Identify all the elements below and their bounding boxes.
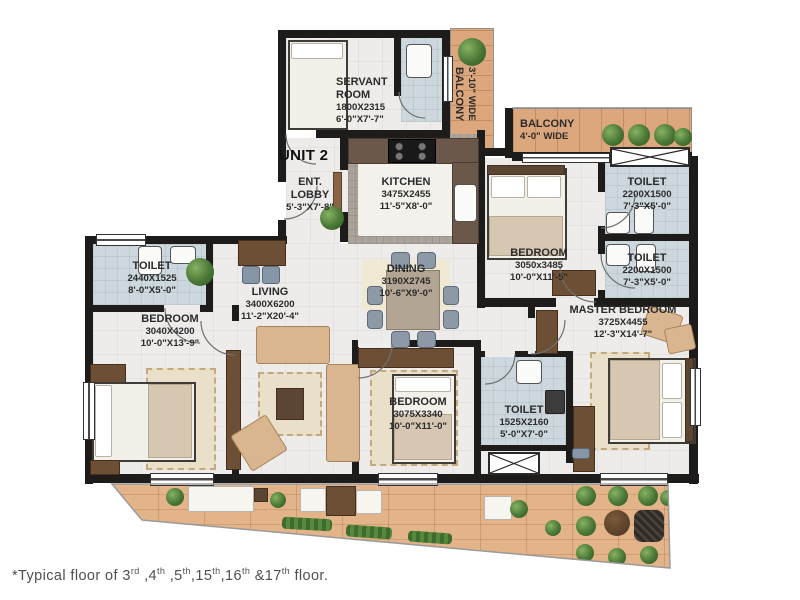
duct-shaft [488, 452, 540, 475]
toilet-wc [516, 360, 542, 384]
label-ent-lobby: ENT. LOBBY 5'-3"X7'-8" [284, 176, 336, 214]
label-toilet-left: TOILET 2440X1525 8'-0"X5'-0" [104, 260, 200, 297]
door-opening [528, 318, 535, 354]
label-dining: DINING 3190X2745 10'-6"X9'-0" [362, 263, 450, 300]
stove [388, 139, 436, 163]
terrace-plant [270, 492, 286, 508]
floor-mat [572, 448, 590, 459]
pillow [395, 377, 451, 392]
label-bedroom-right: BEDROOM 3050x3485 10'-0"X11'-5" [483, 247, 595, 284]
balcony-plant [602, 124, 624, 146]
terrace-plant [576, 516, 596, 536]
terrace-plant [510, 500, 528, 518]
tv-unit [226, 350, 241, 470]
terrace-plant [545, 520, 561, 536]
dining-chair [391, 331, 410, 348]
label-kitchen: KITCHEN 3475X2455 11'-5"X8'-0" [356, 176, 456, 213]
pillow [662, 363, 682, 399]
balcony-plant [654, 124, 676, 146]
wardrobe [573, 406, 595, 472]
coffee-table [276, 388, 304, 420]
terrace-sofa [188, 486, 254, 512]
balcony-sliding-door [522, 153, 610, 163]
pillow [662, 402, 682, 438]
kitchen-sink [454, 184, 477, 222]
label-toilet-right-top: TOILET 2200X1500 7'-3"X5'-0" [604, 176, 690, 213]
terrace-plant [640, 546, 658, 564]
pillow [491, 176, 525, 198]
toilet-wc [406, 44, 432, 78]
wall [598, 234, 692, 241]
wardrobe [90, 364, 126, 384]
label-master-bedroom: MASTER BEDROOM 3725X4455 12'-3"X14'-7" [548, 304, 698, 341]
pillow [527, 176, 561, 198]
label-living: LIVING 3400X6200 11'-2"X20'-4" [224, 286, 316, 323]
window [83, 382, 95, 440]
label-servant-room: SERVANT ROOM 1800X2315 6'-0"X7'-7" [336, 76, 408, 126]
window [96, 234, 146, 246]
terrace-hedge [282, 517, 333, 532]
label-bedroom-left: BEDROOM 3040X4200 10'-0"X13'-9" [108, 313, 232, 350]
terrace-hedge [346, 524, 393, 539]
label-toilet-middle: TOILET 1525X2160 5'-0"X7'-0" [482, 404, 566, 441]
door-opening [485, 351, 515, 357]
wall [477, 148, 513, 156]
terrace-sliding-door [150, 473, 214, 486]
terrace-deck [112, 484, 670, 570]
terrace-armchair [484, 496, 512, 520]
terrace-armchair [300, 488, 326, 512]
chair [262, 266, 280, 284]
blanket [610, 360, 660, 440]
console-table [238, 240, 286, 266]
terrace-plant [608, 548, 626, 566]
door-opening [286, 130, 316, 138]
terrace-round-table [604, 510, 630, 536]
label-balcony-side: BALCONY 3'-10" WIDE [452, 44, 477, 144]
floor-plan: UNIT 2 SERVANT ROOM 1800X2315 6'-0"X7'-7… [0, 0, 800, 600]
wardrobe [358, 348, 454, 368]
label-balcony-top: BALCONY 4'-0" WIDE [520, 118, 598, 143]
balcony-plant [674, 128, 692, 146]
terrace-hedge [408, 530, 453, 544]
dining-chair [367, 310, 383, 329]
sofa-three-seat [326, 364, 360, 462]
window [690, 368, 701, 426]
wall [481, 445, 571, 451]
headboard [487, 165, 565, 175]
duct-shaft [610, 147, 690, 167]
terrace-side-table [254, 488, 268, 502]
dining-chair [443, 310, 459, 329]
terrace-armchair [356, 490, 382, 514]
nightstand [90, 460, 120, 475]
sofa-two-seat [256, 326, 330, 364]
chair [242, 266, 260, 284]
terrace-rug [326, 486, 356, 516]
wall [278, 30, 286, 144]
pillow [291, 43, 343, 59]
terrace-sliding-door [600, 473, 668, 486]
terrace-plant [576, 486, 596, 506]
blanket [148, 384, 192, 458]
door-opening [164, 305, 200, 312]
terrace-plant [638, 486, 658, 506]
unit-label: UNIT 2 [279, 147, 328, 164]
terrace-plant [576, 544, 594, 562]
wall [474, 340, 481, 481]
terrace-plant [660, 490, 676, 506]
label-bedroom-middle: BEDROOM 3075X3340 10'-0"X11'-0" [368, 396, 468, 433]
door-opening [358, 340, 392, 347]
footnote: *Typical floor of 3rd ,4th ,5th,15th,16t… [12, 566, 328, 584]
pillow [95, 385, 112, 457]
label-toilet-right-bottom: TOILET 2200X1500 7'-3"X5'-0" [604, 252, 690, 289]
toilet-sink [606, 212, 630, 234]
balcony-plant [628, 124, 650, 146]
wall [278, 30, 450, 38]
dining-chair [417, 331, 436, 348]
terrace-lounge-chair [634, 510, 664, 542]
terrace-plant [608, 486, 628, 506]
terrace-plant [166, 488, 184, 506]
terrace-sliding-door [378, 473, 438, 486]
